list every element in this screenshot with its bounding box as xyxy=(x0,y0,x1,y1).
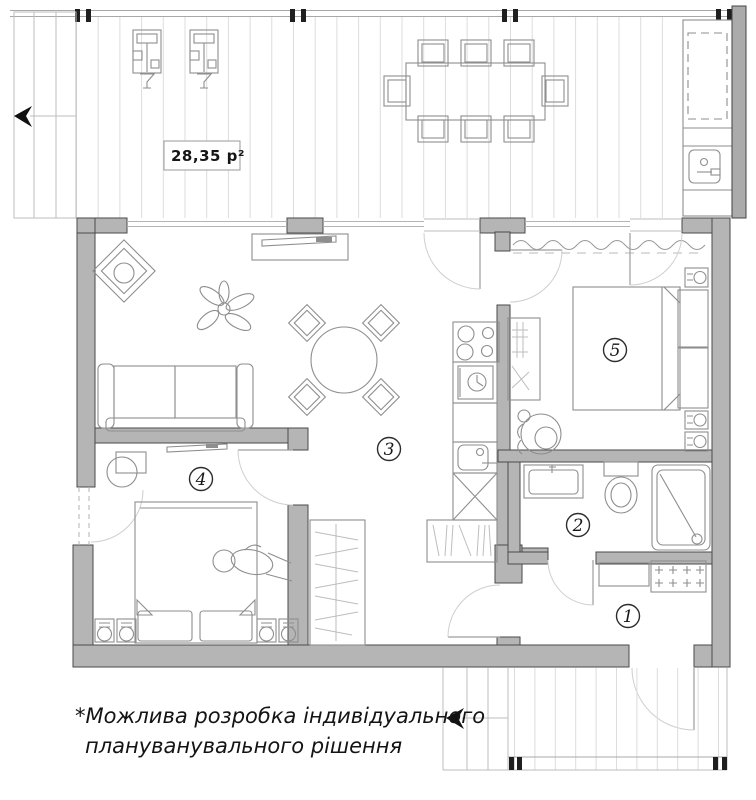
dining-chair xyxy=(289,379,326,416)
room-label-1: 1 xyxy=(617,605,640,628)
floor-plan-drawing: 28,35 р² xyxy=(0,0,756,800)
curtain-symbol xyxy=(513,241,705,250)
sofa xyxy=(98,364,253,431)
room-label-2: 2 xyxy=(567,514,590,537)
railing-post xyxy=(509,757,514,770)
kitchen-counter xyxy=(453,403,497,442)
tv-cabinet xyxy=(252,234,348,260)
armchair xyxy=(93,240,155,302)
tv-icon xyxy=(316,237,332,242)
wall-lamp xyxy=(685,268,708,451)
door-bedroom4 xyxy=(238,450,293,505)
sliding-glass-door xyxy=(127,222,287,227)
terrace-stairs-left xyxy=(14,12,76,218)
wall-segment xyxy=(288,428,308,450)
room-label-5: 5 xyxy=(604,339,627,362)
room-number: 2 xyxy=(572,516,584,536)
railing-post xyxy=(713,757,718,770)
toilet xyxy=(604,462,638,513)
room-number: 1 xyxy=(623,607,634,627)
room-label-3: 3 xyxy=(378,438,401,461)
door-hall-entry xyxy=(448,585,500,637)
dining-chair xyxy=(289,305,326,342)
wall-tv xyxy=(167,444,227,452)
railing-post xyxy=(301,9,306,22)
floor-plan-page: 28,35 р² xyxy=(0,0,756,800)
kitchen xyxy=(427,322,499,562)
room-number: 5 xyxy=(610,341,621,361)
wall-segment xyxy=(508,552,548,564)
railing-post xyxy=(502,9,507,22)
wall-segment xyxy=(498,450,712,462)
cooktop xyxy=(453,322,499,362)
hall-side-wardrobe xyxy=(310,520,365,645)
desk-chair-figure xyxy=(518,410,561,454)
bed xyxy=(135,502,257,643)
wardrobe xyxy=(508,318,540,400)
wall-segment xyxy=(287,218,323,233)
railing-post xyxy=(86,9,91,22)
bedroom-4 xyxy=(95,444,365,645)
door-terrace-bedroom5 xyxy=(630,233,682,285)
room-number: 4 xyxy=(195,470,207,490)
bedroom-window xyxy=(525,222,630,227)
railing-post xyxy=(290,9,295,22)
bathroom-sink xyxy=(524,465,583,498)
shoe-bench xyxy=(599,563,649,586)
room-label-4: 4 xyxy=(190,468,213,491)
armchair-cushion xyxy=(114,263,134,283)
door-bathroom xyxy=(548,560,593,605)
wall-segment xyxy=(732,6,746,218)
wall-segment xyxy=(495,232,510,251)
hall-wardrobe xyxy=(427,520,497,562)
outdoor-kitchen xyxy=(683,20,732,216)
side-table xyxy=(107,452,146,487)
upper-terrace: 28,35 р² xyxy=(10,6,746,218)
room-number: 3 xyxy=(384,440,395,460)
railing-post xyxy=(513,9,518,22)
wall-segment xyxy=(508,460,520,552)
terrace-area-label: 28,35 р² xyxy=(164,141,245,170)
entry-hall xyxy=(599,561,706,592)
dining-chair xyxy=(363,305,400,342)
wall-segment xyxy=(73,645,629,667)
door-kitchen-bedroom5 xyxy=(510,250,562,302)
person-on-bed xyxy=(213,545,292,581)
wall-segment xyxy=(497,637,520,645)
terrace-decking xyxy=(508,668,727,770)
living-room xyxy=(93,234,399,431)
bathroom xyxy=(524,462,710,550)
exit-arrow-icon xyxy=(14,106,32,127)
tall-cabinet xyxy=(453,473,497,520)
dining-chair xyxy=(363,379,400,416)
terrace-area-text: 28,35 р² xyxy=(171,147,245,165)
wall-segment xyxy=(596,552,712,564)
round-dining-table xyxy=(289,305,400,416)
bedroom-5 xyxy=(508,268,708,454)
railing-post xyxy=(517,757,522,770)
lower-terrace xyxy=(443,668,727,770)
nightstand xyxy=(678,290,708,347)
railing-post xyxy=(722,757,727,770)
bedroom4-window xyxy=(79,487,143,545)
wall-lamp xyxy=(95,619,298,642)
table-top xyxy=(311,327,377,393)
footnote-line-2: плануванувального рішення xyxy=(85,734,402,758)
kitchen-sink xyxy=(453,442,497,473)
wall-segment xyxy=(712,218,730,667)
door-terrace-kitchen xyxy=(424,233,480,289)
door-opening xyxy=(424,219,682,231)
footnote: *Можлива розробка індивідуального планув… xyxy=(75,704,485,758)
nightstand xyxy=(678,348,708,408)
wall-segment xyxy=(682,218,712,233)
wall-segment xyxy=(480,218,525,233)
sliding-glass-door xyxy=(323,222,424,227)
terrace-decking xyxy=(76,16,683,218)
wall-segment xyxy=(95,428,288,443)
door-mat xyxy=(651,561,706,592)
plant xyxy=(194,281,256,334)
oven xyxy=(453,362,497,403)
footnote-line-1: *Можлива розробка індивідуального xyxy=(75,704,485,728)
shower xyxy=(652,465,710,550)
